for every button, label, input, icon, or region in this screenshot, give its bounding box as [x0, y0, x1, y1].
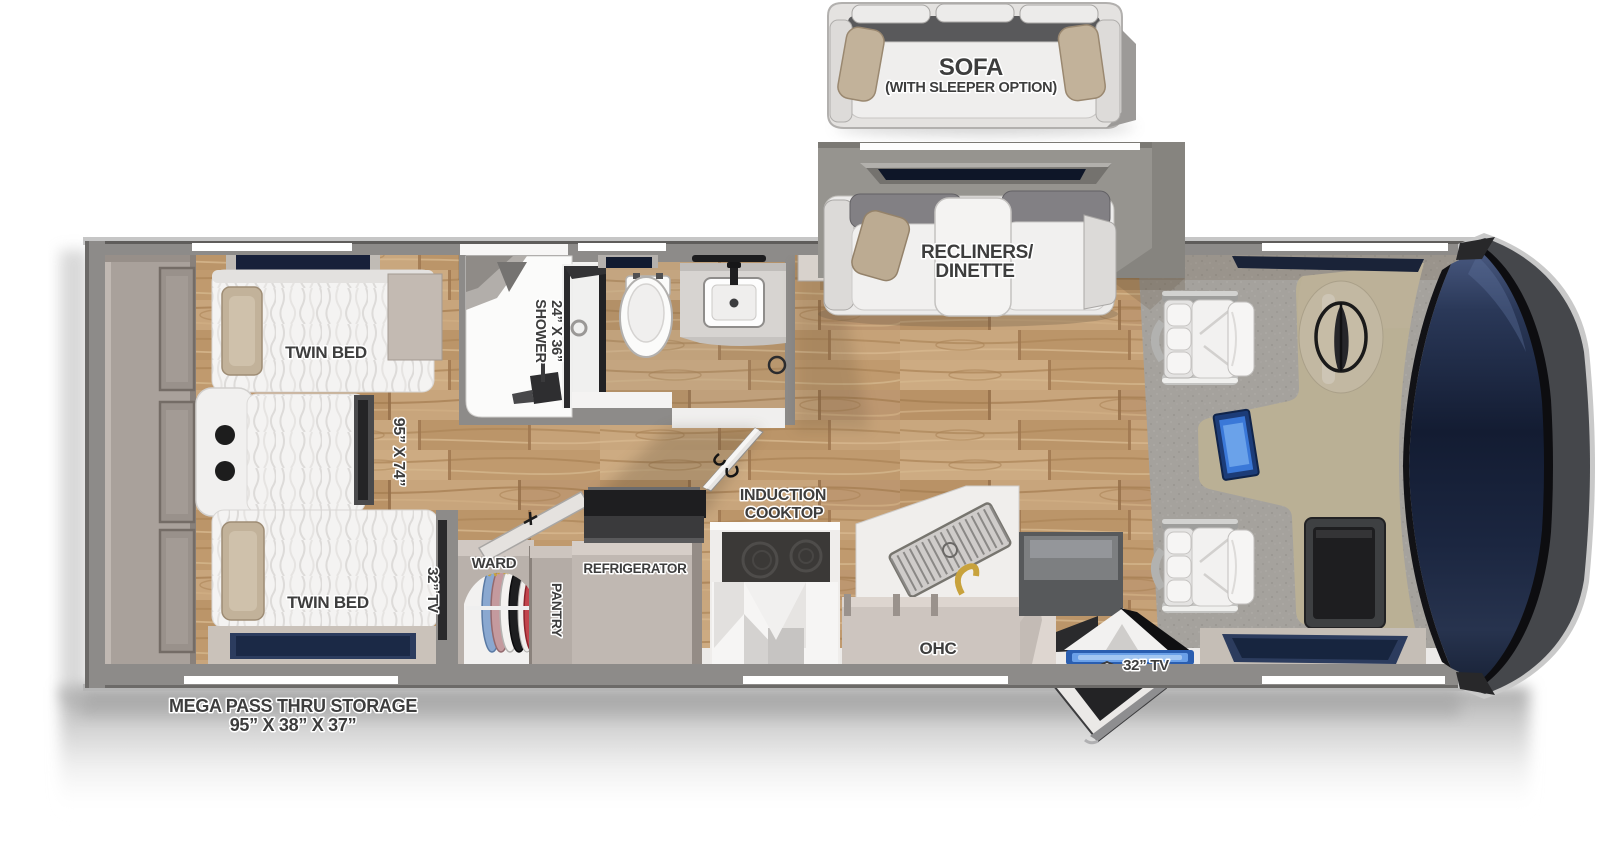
svg-text:32” TV: 32” TV	[1123, 657, 1169, 674]
svg-text:COOKTOP: COOKTOP	[745, 505, 824, 522]
svg-text:SHOWER: SHOWER	[532, 299, 548, 363]
svg-text:95” X 74”: 95” X 74”	[390, 418, 407, 486]
svg-text:RECLINERS/: RECLINERS/	[921, 242, 1034, 263]
svg-text:(WITH SLEEPER OPTION): (WITH SLEEPER OPTION)	[885, 80, 1057, 96]
svg-text:INDUCTION: INDUCTION	[740, 487, 826, 504]
svg-text:WARD: WARD	[472, 555, 517, 572]
svg-text:MEGA PASS THRU STORAGE: MEGA PASS THRU STORAGE	[169, 696, 417, 716]
svg-text:REFRIGERATOR: REFRIGERATOR	[583, 561, 687, 576]
svg-text:32” TV: 32” TV	[424, 567, 441, 613]
svg-text:DINETTE: DINETTE	[935, 261, 1014, 282]
svg-text:OHC: OHC	[920, 639, 957, 658]
svg-text:SOFA: SOFA	[939, 54, 1003, 81]
svg-text:24” X 36”: 24” X 36”	[548, 300, 564, 362]
svg-text:95” X 38” X 37”: 95” X 38” X 37”	[230, 715, 357, 735]
svg-text:PANTRY: PANTRY	[549, 583, 565, 638]
svg-text:TWIN BED: TWIN BED	[285, 343, 367, 362]
svg-text:TWIN BED: TWIN BED	[287, 593, 369, 612]
